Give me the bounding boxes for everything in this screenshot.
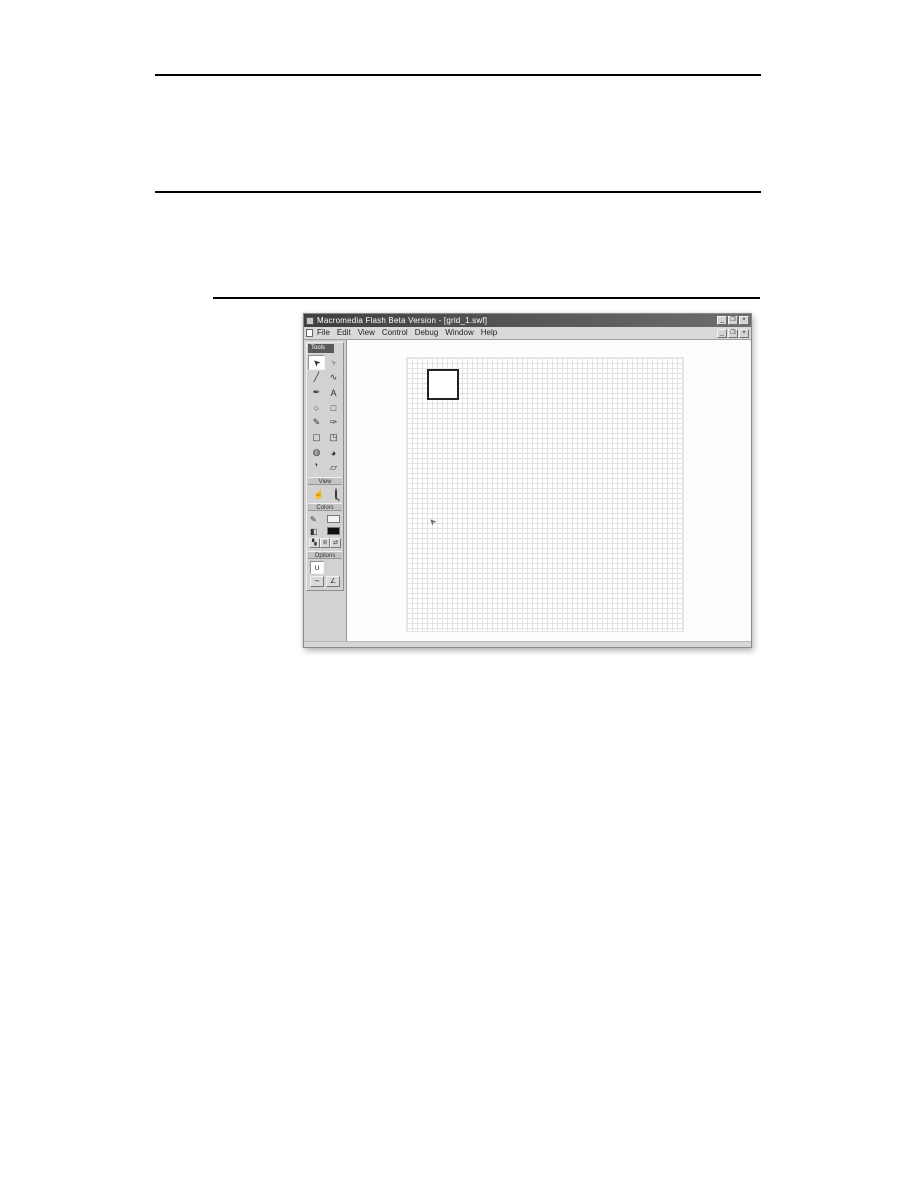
menu-items: File Edit View Control Debug Window Help <box>317 327 714 339</box>
horizontal-rule-top <box>155 74 761 76</box>
lasso-tool-icon: ∿ <box>330 372 338 383</box>
arrow-cursor-icon: ➤ <box>426 515 439 528</box>
fill-transform-tool-icon: ◳ <box>329 432 338 443</box>
swap-colors-button[interactable]: ⇄ <box>330 538 341 548</box>
straighten-button[interactable]: ∠ <box>326 576 340 587</box>
eyedropper-tool[interactable]: ❜ <box>308 460 325 475</box>
smooth-icon: ∼ <box>314 578 320 585</box>
title-bar[interactable]: Macromedia Flash Beta Version - [grid_1.… <box>304 314 751 327</box>
work-area: ➤ <box>347 340 751 641</box>
horizontal-rule-middle <box>155 191 761 193</box>
pencil-tool[interactable]: ✎ <box>308 415 325 430</box>
swap-colors-icon: ⇄ <box>333 540 338 546</box>
smooth-button[interactable]: ∼ <box>310 576 324 587</box>
menu-window[interactable]: Window <box>445 327 473 339</box>
brush-tool[interactable]: ✑ <box>325 415 342 430</box>
brush-tool-icon: ✑ <box>330 417 338 428</box>
magnet-icon: ∪ <box>314 563 320 572</box>
color-option-buttons: ▚ ⊘ ⇄ <box>308 537 342 549</box>
drawn-square <box>427 369 459 400</box>
hand-tool-icon: ☝ <box>313 489 324 499</box>
client-area: Tools ➤ ➢ ╱ ∿ ✒ A ○ □ ✎ ✑ ▢ ◳ ◍ <box>304 340 751 641</box>
paint-bucket-tool-icon: ◕ <box>331 448 336 458</box>
colors-section-label: Colors <box>308 503 342 511</box>
free-transform-tool-icon: ▢ <box>312 432 321 443</box>
text-tool[interactable]: A <box>325 385 342 400</box>
child-window-controls: _ ❐ × <box>717 329 749 338</box>
fill-color-row: ◧ <box>308 525 342 537</box>
menu-edit[interactable]: Edit <box>337 327 351 339</box>
pen-tool-icon: ✒ <box>313 387 321 398</box>
no-color-button[interactable]: ⊘ <box>320 538 331 548</box>
eyedropper-tool-icon: ❜ <box>315 462 318 473</box>
options-section-label: Options <box>308 551 342 559</box>
rectangle-tool[interactable]: □ <box>325 400 342 415</box>
child-close-button[interactable]: × <box>739 329 749 338</box>
stage-canvas[interactable]: ➤ <box>406 357 684 632</box>
menu-help[interactable]: Help <box>481 327 497 339</box>
stroke-color-swatch[interactable] <box>327 515 340 523</box>
default-colors-icon: ▚ <box>312 540 317 546</box>
menu-debug[interactable]: Debug <box>415 327 439 339</box>
ink-bottle-tool-icon: ◍ <box>313 447 321 458</box>
child-restore-button[interactable]: ❐ <box>728 329 738 338</box>
close-button[interactable]: × <box>739 316 749 325</box>
tools-panel-inner: Tools ➤ ➢ ╱ ∿ ✒ A ○ □ ✎ ✑ ▢ ◳ ◍ <box>306 342 344 591</box>
pen-tool[interactable]: ✒ <box>308 385 325 400</box>
snap-to-objects-button[interactable]: ∪ <box>310 561 324 574</box>
eraser-tool-icon: ▱ <box>330 462 337 473</box>
straighten-icon: ∠ <box>330 578 336 585</box>
ink-bottle-tool[interactable]: ◍ <box>308 445 325 460</box>
subselection-tool-icon: ➢ <box>327 356 340 369</box>
stroke-color-row: ✎ <box>308 513 342 525</box>
eraser-tool[interactable]: ▱ <box>325 460 342 475</box>
tools-panel-empty-area <box>306 591 344 641</box>
arrow-tool-options: ∼ ∠ <box>308 575 342 589</box>
stroke-color-icon: ✎ <box>310 515 317 524</box>
flash-app-icon <box>306 317 314 325</box>
window-bottom-frame <box>304 641 751 647</box>
fill-color-icon: ◧ <box>310 527 318 536</box>
zoom-tool[interactable] <box>335 489 337 499</box>
document-icon <box>306 329 313 337</box>
menu-view[interactable]: View <box>358 327 375 339</box>
flash-application-window: Macromedia Flash Beta Version - [grid_1.… <box>303 313 752 648</box>
arrow-tool[interactable]: ➤ <box>308 355 325 370</box>
line-tool-icon: ╱ <box>314 372 319 383</box>
window-title: Macromedia Flash Beta Version - [grid_1.… <box>317 314 714 327</box>
tool-grid: ➤ ➢ ╱ ∿ ✒ A ○ □ ✎ ✑ ▢ ◳ ◍ ◕ ❜ <box>308 355 342 475</box>
book-page: Macromedia Flash Beta Version - [grid_1.… <box>0 0 918 1188</box>
tools-panel-header: Tools <box>308 344 334 353</box>
no-color-icon: ⊘ <box>322 540 327 546</box>
restore-button[interactable]: ❐ <box>728 316 738 325</box>
horizontal-rule-figure <box>213 297 760 299</box>
text-tool-icon: A <box>330 388 336 398</box>
oval-tool[interactable]: ○ <box>308 400 325 415</box>
fill-transform-tool[interactable]: ◳ <box>325 430 342 445</box>
zoom-tool-icon <box>335 488 337 500</box>
lasso-tool[interactable]: ∿ <box>325 370 342 385</box>
minimize-button[interactable]: _ <box>717 316 727 325</box>
line-tool[interactable]: ╱ <box>308 370 325 385</box>
default-colors-button[interactable]: ▚ <box>309 538 320 548</box>
rectangle-tool-icon: □ <box>331 403 336 413</box>
view-section: ☝ <box>308 487 342 501</box>
subselection-tool[interactable]: ➢ <box>325 355 342 370</box>
pencil-tool-icon: ✎ <box>313 417 321 428</box>
arrow-tool-icon: ➤ <box>310 356 323 369</box>
hand-tool[interactable]: ☝ <box>313 489 324 500</box>
menu-bar: File Edit View Control Debug Window Help… <box>304 327 751 340</box>
tools-panel: Tools ➤ ➢ ╱ ∿ ✒ A ○ □ ✎ ✑ ▢ ◳ ◍ <box>304 340 347 641</box>
free-transform-tool[interactable]: ▢ <box>308 430 325 445</box>
menu-file[interactable]: File <box>317 327 330 339</box>
menu-control[interactable]: Control <box>382 327 408 339</box>
view-section-label: View <box>308 477 342 485</box>
paint-bucket-tool[interactable]: ◕ <box>325 445 342 460</box>
oval-tool-icon: ○ <box>314 403 319 413</box>
child-minimize-button[interactable]: _ <box>717 329 727 338</box>
fill-color-swatch[interactable] <box>327 527 340 535</box>
window-controls: _ ❐ × <box>717 316 749 325</box>
